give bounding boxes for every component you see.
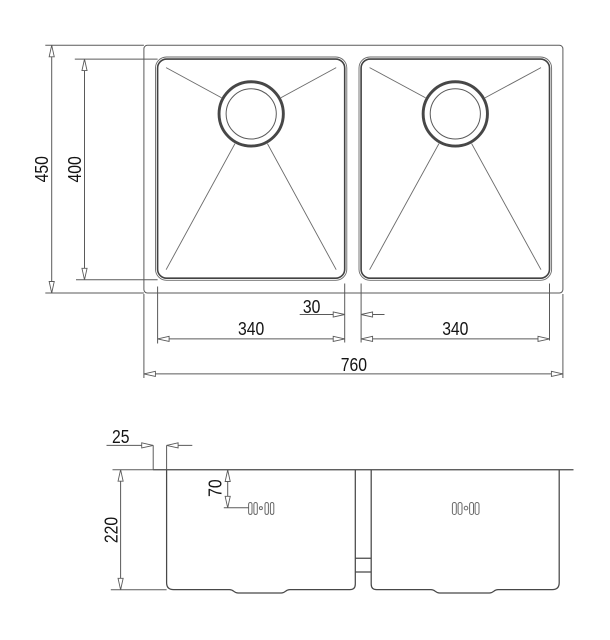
svg-text:760: 760 — [341, 354, 367, 376]
svg-text:340: 340 — [238, 318, 264, 340]
svg-text:25: 25 — [112, 426, 129, 448]
svg-text:340: 340 — [442, 318, 468, 340]
svg-text:400: 400 — [64, 156, 86, 182]
svg-text:450: 450 — [31, 156, 53, 182]
svg-text:30: 30 — [303, 296, 320, 318]
svg-text:70: 70 — [204, 479, 226, 496]
svg-text:220: 220 — [100, 517, 122, 543]
